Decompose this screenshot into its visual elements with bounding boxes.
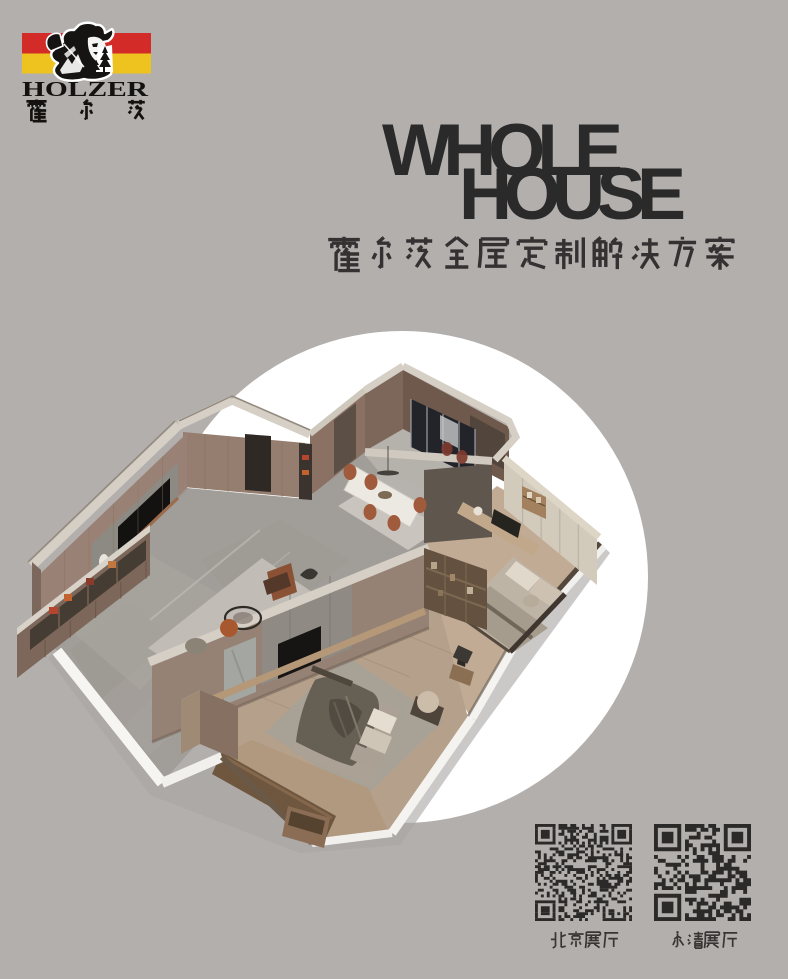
svg-text:HOUSE: HOUSE bbox=[459, 152, 684, 235]
svg-text:HOLZER: HOLZER bbox=[22, 77, 149, 101]
